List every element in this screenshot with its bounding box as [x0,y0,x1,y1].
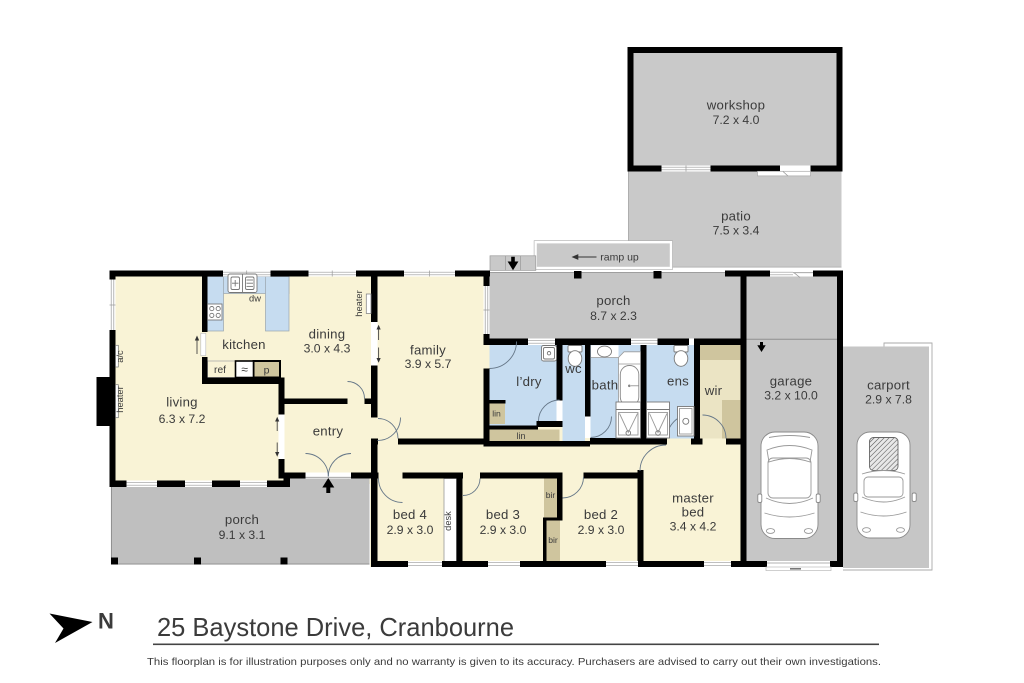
svg-text:wir: wir [704,383,723,398]
svg-text:workshop: workshop [706,98,765,113]
svg-text:3.2 x 10.0: 3.2 x 10.0 [764,389,818,403]
svg-text:ens: ens [667,374,689,389]
svg-text:3.4 x 4.2: 3.4 x 4.2 [670,520,717,534]
svg-text:bir: bir [546,490,556,500]
svg-text:2.9 x 7.8: 2.9 x 7.8 [865,393,912,407]
svg-text:7.5 x 3.4: 7.5 x 3.4 [713,224,760,238]
svg-text:porch: porch [225,512,259,527]
svg-text:2.9 x 3.0: 2.9 x 3.0 [578,523,625,537]
svg-text:7.2 x 4.0: 7.2 x 4.0 [713,113,760,127]
svg-text:ref: ref [214,365,226,376]
svg-text:master: master [672,491,714,506]
svg-text:N: N [98,609,114,634]
svg-text:bir: bir [548,535,558,545]
svg-text:patio: patio [721,209,751,224]
svg-text:ramp up: ramp up [600,252,639,264]
svg-text:family: family [410,342,446,357]
svg-text:garage: garage [770,374,813,389]
svg-text:heater: heater [115,386,125,412]
svg-text:bed 4: bed 4 [393,507,427,522]
svg-text:lin: lin [492,409,501,419]
svg-text:entry: entry [313,424,344,439]
svg-text:a/c: a/c [115,350,125,363]
svg-text:≈: ≈ [241,363,248,377]
svg-text:8.7 x 2.3: 8.7 x 2.3 [590,309,637,323]
svg-text:bath: bath [592,378,619,393]
svg-text:25 Baystone Drive, Cranbourne: 25 Baystone Drive, Cranbourne [157,612,514,642]
svg-text:2.9 x 3.0: 2.9 x 3.0 [480,523,527,537]
svg-text:9.1 x 3.1: 9.1 x 3.1 [219,528,266,542]
svg-text:lin: lin [517,431,526,441]
svg-text:desk: desk [443,511,453,531]
svg-text:l’dry: l’dry [516,374,542,389]
svg-text:wc: wc [564,361,582,376]
svg-text:3.9 x 5.7: 3.9 x 5.7 [405,357,452,371]
svg-text:6.3 x 7.2: 6.3 x 7.2 [159,412,206,426]
svg-text:dining: dining [309,327,346,342]
svg-text:kitchen: kitchen [222,337,266,352]
svg-text:dw: dw [249,294,261,304]
svg-text:bed 2: bed 2 [584,507,618,522]
svg-text:bed 3: bed 3 [486,507,520,522]
svg-text:This floorplan is for illustra: This floorplan is for illustration purpo… [147,657,881,668]
svg-text:heater: heater [354,290,364,316]
svg-text:3.0 x 4.3: 3.0 x 4.3 [304,341,351,355]
svg-text:bed: bed [682,505,705,520]
svg-text:2.9 x 3.0: 2.9 x 3.0 [387,523,434,537]
svg-text:carport: carport [867,378,910,393]
svg-text:living: living [166,395,198,410]
svg-text:p: p [264,365,270,377]
svg-text:porch: porch [596,293,630,308]
